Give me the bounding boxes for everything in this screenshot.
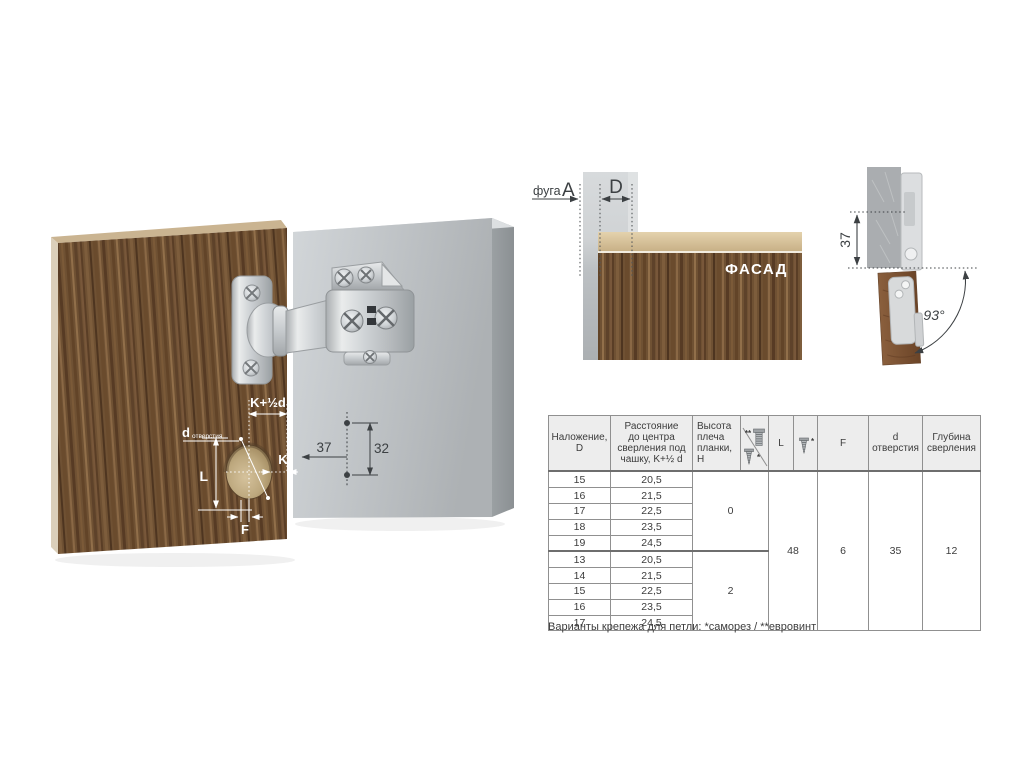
- door-panel: [51, 220, 287, 554]
- hinge-spec-sheet-page: { "main_illustration": { "door_dims": { …: [0, 0, 1024, 768]
- diameter-end-dot: [239, 437, 243, 441]
- cell-l-shared: 48: [769, 471, 818, 630]
- spec-table-wrap: Наложение, D Расстояние до центра сверле…: [548, 415, 980, 631]
- cell-distance: 20,5: [611, 471, 693, 487]
- hinge-installation-illustration: K+½d d отверстия L K F 37 32: [30, 190, 530, 580]
- dim-32: 32: [374, 441, 389, 456]
- euroscrew-icon: [753, 429, 764, 446]
- door-shadow: [55, 553, 295, 567]
- cell-distance: 22,5: [611, 583, 693, 599]
- dim-d-hole-sub: отверстия: [192, 433, 223, 440]
- hinge-side-view-diagram: 37 93°: [830, 140, 1020, 380]
- gap-label: фуга: [533, 184, 561, 198]
- cabinet-side-panel: [293, 218, 514, 518]
- cell-arm-height-0: 0: [693, 471, 769, 551]
- cell-distance: 20,5: [611, 551, 693, 567]
- header-fastener-options: ** *: [741, 416, 769, 472]
- screw-mark: *: [811, 437, 815, 446]
- cell-overlay-d: 15: [549, 471, 611, 487]
- facade-panel: [598, 232, 802, 360]
- dim-l: L: [199, 468, 208, 484]
- euroscrew-mark: **: [744, 429, 751, 438]
- header-f: F: [818, 416, 869, 472]
- overlay-letter: D: [609, 177, 623, 198]
- dim-37: 37: [316, 440, 331, 455]
- facade-label: ФАСАД: [725, 261, 788, 278]
- cell-overlay-d: 15: [549, 583, 611, 599]
- dim-k-half-d: K+½d: [250, 395, 286, 410]
- header-distance: Расстояние до центра сверления под чашку…: [611, 416, 693, 472]
- cell-f-shared: 6: [818, 471, 869, 630]
- panel-shadow: [295, 517, 505, 531]
- cell-overlay-d: 13: [549, 551, 611, 567]
- screw-icon: [799, 438, 808, 454]
- cell-arm-height-2: 2: [693, 551, 769, 630]
- cell-distance: 21,5: [611, 568, 693, 584]
- dim-k: K: [278, 452, 288, 467]
- header-arm-height: Высота плеча планки, H: [693, 416, 741, 472]
- diameter-end-dot: [266, 496, 270, 500]
- cell-overlay-d: 19: [549, 535, 611, 551]
- fastener-diagonal-cell: ** *: [742, 427, 768, 467]
- header-overlay-d: Наложение, D: [549, 416, 611, 472]
- header-hole-d: d отверстия: [869, 416, 923, 472]
- table-row: 15 20,5 0 48 6 35 12: [549, 471, 981, 487]
- header-l: L: [769, 416, 794, 472]
- cell-overlay-d: 16: [549, 488, 611, 504]
- cell-distance: 23,5: [611, 519, 693, 535]
- dim-f: F: [241, 522, 249, 537]
- header-screw-variant: *: [794, 416, 818, 472]
- header-depth: Глубина сверления: [923, 416, 981, 472]
- cell-distance: 21,5: [611, 488, 693, 504]
- cell-overlay-d: 14: [549, 568, 611, 584]
- cell-overlay-d: 17: [549, 503, 611, 519]
- dim-37-side: 37: [837, 232, 853, 248]
- cell-distance: 22,5: [611, 503, 693, 519]
- opening-angle-label: 93°: [923, 307, 945, 323]
- gap-letter: A: [562, 180, 575, 201]
- open-door-section: [878, 271, 925, 365]
- hinge-arm-section: [901, 173, 922, 270]
- cell-distance: 24,5: [611, 535, 693, 551]
- fastener-footnote: Варианты крепежа для петли: *саморез / *…: [548, 621, 988, 633]
- table-header-row: Наложение, D Расстояние до центра сверле…: [549, 416, 981, 472]
- screw-header-cell: *: [795, 435, 817, 459]
- hinge-spec-table: Наложение, D Расстояние до центра сверле…: [548, 415, 981, 631]
- dim-d-hole: d: [182, 425, 190, 440]
- cabinet-panel-section: [867, 167, 901, 268]
- door-overlay-top-view-diagram: фуга A D ФАСАД: [520, 160, 820, 370]
- screw-mark: *: [757, 453, 761, 462]
- cell-depth-shared: 12: [923, 471, 981, 630]
- cell-overlay-d: 18: [549, 519, 611, 535]
- cell-overlay-d: 16: [549, 599, 611, 615]
- screw-icon: [744, 449, 753, 465]
- cell-hole-d-shared: 35: [869, 471, 923, 630]
- cell-distance: 23,5: [611, 599, 693, 615]
